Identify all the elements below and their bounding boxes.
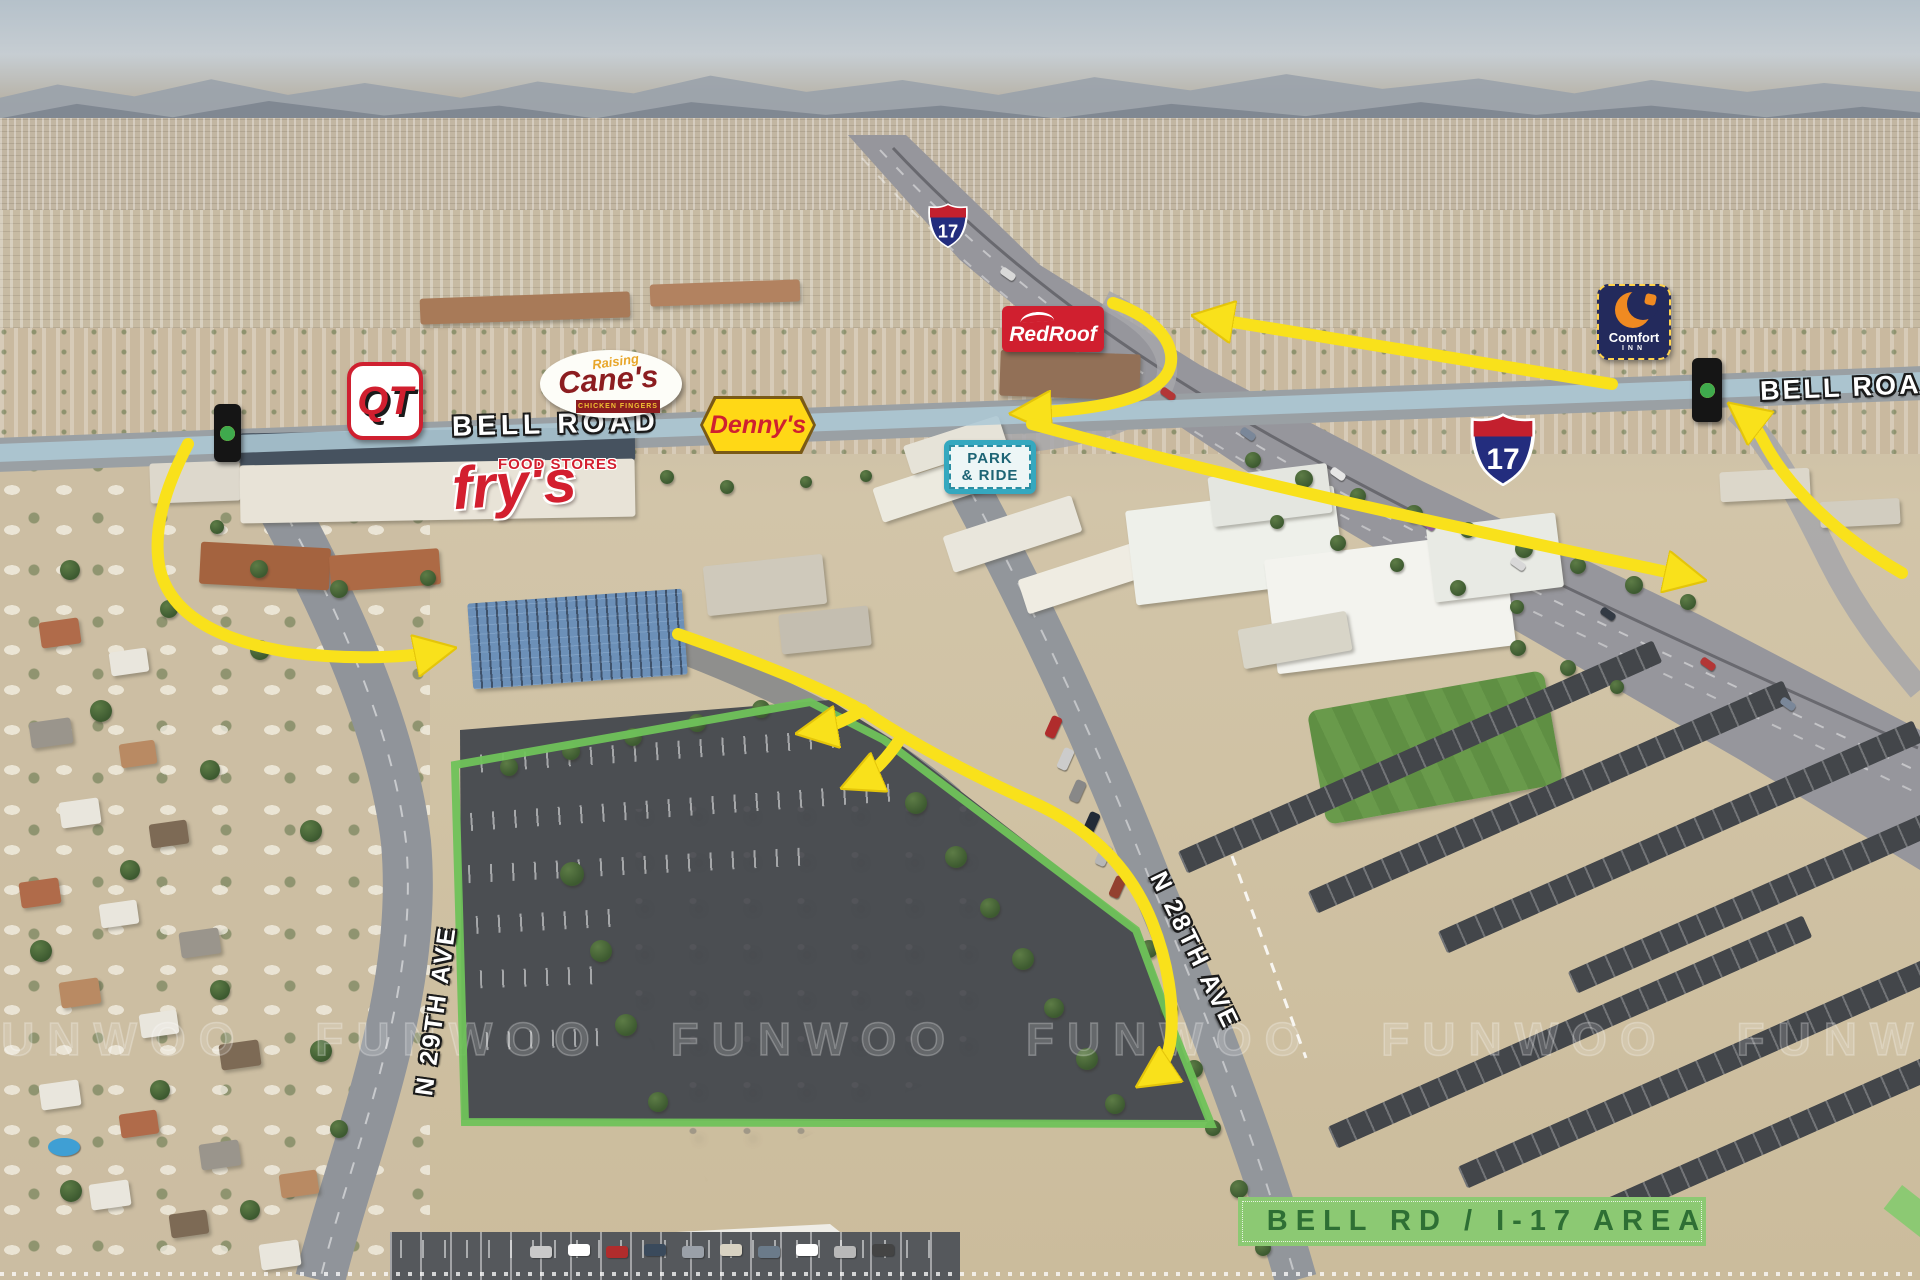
frys-food-stores-text: FOOD STORES — [498, 456, 618, 473]
park-text: PARK — [967, 450, 1012, 467]
i17-number: 17 — [938, 221, 958, 242]
traffic-light-icon — [1692, 358, 1722, 422]
annotation-layer — [0, 0, 1920, 1280]
route-arrow-site-entry-mid — [856, 742, 898, 782]
canes-sub-text: CHICKEN FINGERS — [576, 400, 660, 413]
red-roof-text: RedRoof — [1009, 323, 1097, 347]
dennys-text: Denny's — [710, 411, 806, 440]
dennys-logo: Denny's — [700, 396, 816, 454]
aerial-map: FUNWOO FUNWOO FUNWOO FUNWOO FUNWOO FUNWO… — [0, 0, 1920, 1280]
qt-logo: QT — [347, 362, 423, 440]
red-roof-icon — [1020, 311, 1055, 323]
comfort-text: Comfort — [1599, 330, 1669, 345]
area-title-text: BELL RD / I-17 AREA — [1267, 1205, 1707, 1238]
comfort-inn-logo: Comfort INN — [1597, 284, 1671, 360]
property-boundary — [455, 702, 1211, 1124]
route-arrow-29th-ave-approach — [158, 444, 440, 657]
raising-canes-logo: Raising Cane's CHICKEN FINGERS — [540, 350, 682, 418]
i17-shield-large: 17 — [1470, 413, 1536, 486]
route-arrow-bellrd-westbound — [1208, 318, 1612, 384]
i17-shield-small: 17 — [928, 203, 968, 248]
comfort-inn-text: INN — [1599, 345, 1669, 352]
ride-text: & RIDE — [962, 467, 1019, 484]
park-and-ride-sign: PARK & RIDE — [944, 440, 1036, 494]
route-arrow-northbound-to-bellrd — [1741, 413, 1902, 573]
red-roof-logo: RedRoof — [1002, 306, 1104, 352]
frys-logo: fry's FOOD STORES — [452, 448, 632, 538]
route-arrow-site-approach — [678, 634, 1172, 1078]
canes-main-text: Cane's — [557, 359, 660, 402]
i17-number: 17 — [1486, 443, 1519, 476]
traffic-light-icon — [214, 404, 241, 462]
route-arrow-i17-southbound — [1032, 424, 1690, 577]
area-title-banner: BELL RD / I-17 AREA — [1238, 1197, 1706, 1246]
